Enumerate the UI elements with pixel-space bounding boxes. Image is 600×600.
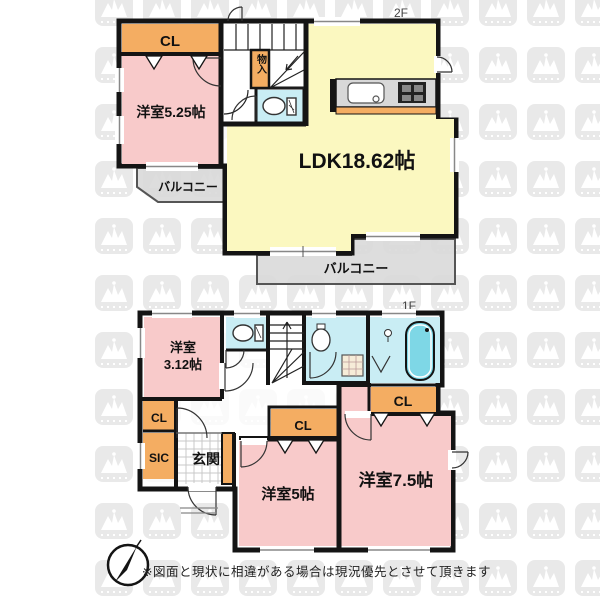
disclaimer-text: ※図面と現状に相違がある場合は現況優先とさせて頂きます	[142, 564, 491, 579]
label-entrance: 玄関	[192, 451, 220, 467]
label-closet-bedroom75: CL	[394, 393, 413, 409]
label-bedroom312-line2: 3.12帖	[164, 357, 202, 372]
floorplan-page: 2F バルコニー バルコニー	[0, 0, 600, 600]
storage-label: 物入	[255, 53, 267, 75]
balcony-left-label: バルコニー	[158, 180, 218, 194]
stove-icon	[398, 82, 426, 103]
floorplan-1f: 1F	[136, 299, 468, 555]
label-bedroom75: 洋室7.5帖	[359, 470, 434, 490]
label-closet-hall: CL	[151, 411, 167, 425]
label-ldk: LDK18.62帖	[299, 150, 416, 173]
floorplan-drawing: 2F バルコニー バルコニー	[0, 0, 600, 600]
balcony-bottom-label: バルコニー	[324, 261, 389, 276]
kitchen-counter	[330, 79, 436, 114]
label-closet-bedroom5: CL	[294, 418, 311, 433]
label-bedroom525: 洋室5.25帖	[136, 104, 205, 120]
label-shoe-closet: SIC	[149, 451, 169, 465]
label-bedroom312-line1: 洋室	[170, 340, 196, 355]
toilet-icon-2f	[263, 98, 296, 116]
label-bedroom5: 洋室5帖	[261, 485, 314, 503]
toilet-icon-1f	[233, 325, 263, 341]
washing-machine-icon	[342, 355, 363, 376]
bathtub-icon	[406, 322, 434, 380]
floor-label-2f: 2F	[394, 6, 408, 20]
label-closet-2f: CL	[160, 33, 180, 50]
